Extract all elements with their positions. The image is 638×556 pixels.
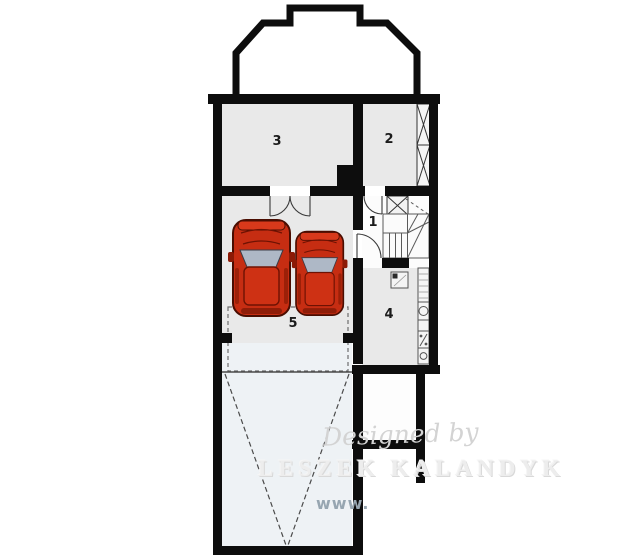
watermark-url: www. (316, 494, 369, 513)
wall-hatch-strip (417, 104, 430, 186)
wall-bottom-driveway (213, 546, 362, 555)
gate-jamb-right (343, 333, 353, 343)
gate-jamb-left (222, 333, 232, 343)
wall-lower-top (352, 365, 440, 374)
wall-right (429, 94, 438, 374)
room-label-2: 2 (381, 132, 397, 147)
pump (418, 331, 429, 348)
wall-vertical-mid (353, 258, 363, 364)
wall-left (213, 94, 222, 555)
car-large (228, 220, 295, 316)
room-3-floor (222, 104, 353, 186)
floor-plan: 1 2 3 4 5 Designed by LESZEK KALANDYK ww… (0, 0, 638, 556)
wall-below-stairs (382, 258, 409, 268)
wall-stub-room3 (337, 165, 353, 186)
wall-mid-seg3 (385, 186, 438, 196)
terrace-outline (236, 8, 417, 95)
chimney-hatch (387, 196, 408, 215)
room-label-3: 3 (269, 134, 285, 149)
room-label-1: 1 (365, 215, 381, 230)
wall-top (208, 94, 440, 104)
boiler (418, 302, 429, 320)
room-label-4: 4 (381, 307, 397, 322)
wall-vertical-upper (353, 104, 363, 230)
watermark-script: Designed by (322, 417, 480, 451)
car-small (292, 232, 348, 316)
floor-drain-sink (391, 272, 408, 288)
cabinet (418, 320, 429, 331)
room-label-5: 5 (285, 316, 301, 331)
watermark-name: LESZEK KALANDYK (258, 456, 565, 482)
washing-machine (418, 348, 429, 364)
wall-mid-seg1 (213, 186, 270, 196)
worktop (418, 268, 429, 302)
